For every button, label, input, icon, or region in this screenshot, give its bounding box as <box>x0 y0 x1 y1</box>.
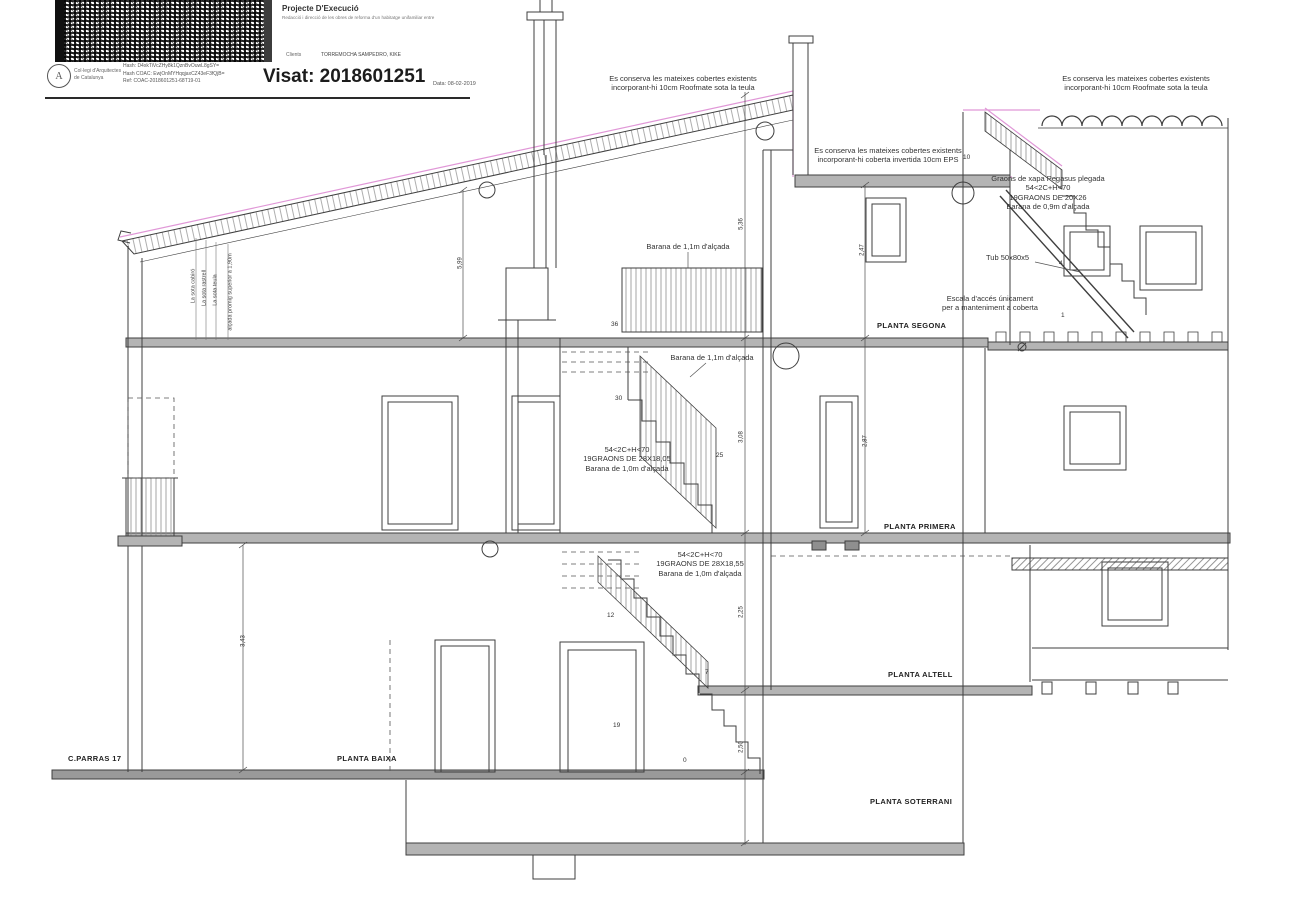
note-stair-upper: 54<2C+H<70 19GRAONS DE 28X18,05 Barana d… <box>583 445 671 473</box>
hash-coac-line: Hash COAC: EwjOnMYHqqjaxCZ43eF3fQjB= <box>123 71 225 79</box>
chimney-right <box>789 36 813 175</box>
qr-code <box>55 0 272 62</box>
dim-3-43: 3,43 <box>240 635 248 647</box>
visa-number: Visat: 2018601251 <box>263 66 425 88</box>
note-roof-right: Es conserva les mateixes cobertes existe… <box>1062 74 1210 93</box>
dim-2-25: 2,25 <box>738 606 746 618</box>
roof <box>118 95 793 262</box>
step-number-19: 19 <box>613 722 620 730</box>
walls <box>128 112 1228 879</box>
visa-stamp-block: A Col·legi d'Arquitectes de Catalunya Ha… <box>45 0 470 99</box>
floor-label-baixa: PLANTA BAIXA <box>337 754 397 763</box>
dim-5-36: 5,36 <box>738 218 746 230</box>
stamp-organization: Col·legi d'Arquitectes de Catalunya <box>74 68 121 81</box>
note-roof-access: Escala d'accés únicament per a mantenime… <box>942 294 1038 313</box>
step-number-4: 4 <box>1059 260 1063 268</box>
step-number-30: 30 <box>615 395 622 403</box>
chimney-left <box>527 0 563 268</box>
org-line2: de Catalunya <box>74 75 121 82</box>
note-flat-roof: Es conserva les mateixes cobertes existe… <box>814 146 962 165</box>
floor-label-soterrani: PLANTA SOTERRANI <box>870 797 952 806</box>
step-number-36: 36 <box>611 321 618 329</box>
step-number-1: 1 <box>1061 312 1065 320</box>
dashed-lines <box>128 352 1012 772</box>
project-subtitle: Redacció i direcció de les obres de refo… <box>282 15 472 20</box>
dim-2-50: 2,50 <box>738 741 746 753</box>
clients-label: Clients <box>286 52 301 58</box>
note-eave-1: La sota cabiró <box>191 269 198 304</box>
note-roof-left: Es conserva les mateixes cobertes existe… <box>609 74 757 93</box>
dim-3-08: 3,08 <box>738 431 746 443</box>
clients-value: TORREMOCHA SAMPEDRO, KIKE <box>321 52 401 58</box>
note-tube: Tub 50x80x5 <box>986 253 1029 262</box>
floor-label-altell: PLANTA ALTELL <box>888 670 953 679</box>
project-title: Projecte D'Execució <box>282 4 359 13</box>
floor-label-segona: PLANTA SEGONA <box>877 321 946 330</box>
visa-date: Data: 08-02-2019 <box>433 81 476 87</box>
step-number-25: 25 <box>716 452 723 460</box>
drawing-sheet: A Col·legi d'Arquitectes de Catalunya Ha… <box>0 0 1300 900</box>
coac-logo-icon: A <box>47 64 71 88</box>
dim-5-99: 5,99 <box>457 257 465 269</box>
floor-label-primera: PLANTA PRIMERA <box>884 522 956 531</box>
note-railing-primera: Barana de 1,1m d'alçada <box>670 353 753 362</box>
hash-line: Hash: D4xkTiVcZHy8k1QznBvOuwL8gSY= <box>123 63 225 71</box>
balcony <box>118 478 182 546</box>
note-stair-lower: 54<2C+H<70 19GRAONS DE 28X18,55 Barana d… <box>656 550 744 578</box>
note-eave-3: La sota teula <box>213 274 220 306</box>
dim-2-87: 2,87 <box>862 435 870 447</box>
note-eave-4: alçada promig superior a 1,90m <box>228 253 235 330</box>
note-roof-stair: Graons de xapa Pegasus plegada 54<2C+H<7… <box>991 174 1104 212</box>
note-eave-2: La sota rastrell <box>202 270 209 306</box>
street-label: C.PARRAS 17 <box>68 754 121 763</box>
step-number-12: 12 <box>607 612 614 620</box>
stamp-hashes: Hash: D4xkTiVcZHy8k1QznBvOuwL8gSY= Hash … <box>123 63 225 86</box>
step-number-0: 0 <box>683 757 687 765</box>
note-railing-segona: Barana de 1,1m d'alçada <box>646 242 729 251</box>
org-line1: Col·legi d'Arquitectes <box>74 68 121 75</box>
ref-line: Ref: COAC-2018601251-68T19-01 <box>123 78 225 86</box>
step-number-10: 10 <box>963 154 970 162</box>
step-number-7: 7 <box>705 669 709 677</box>
dim-2-47: 2,47 <box>859 244 867 256</box>
